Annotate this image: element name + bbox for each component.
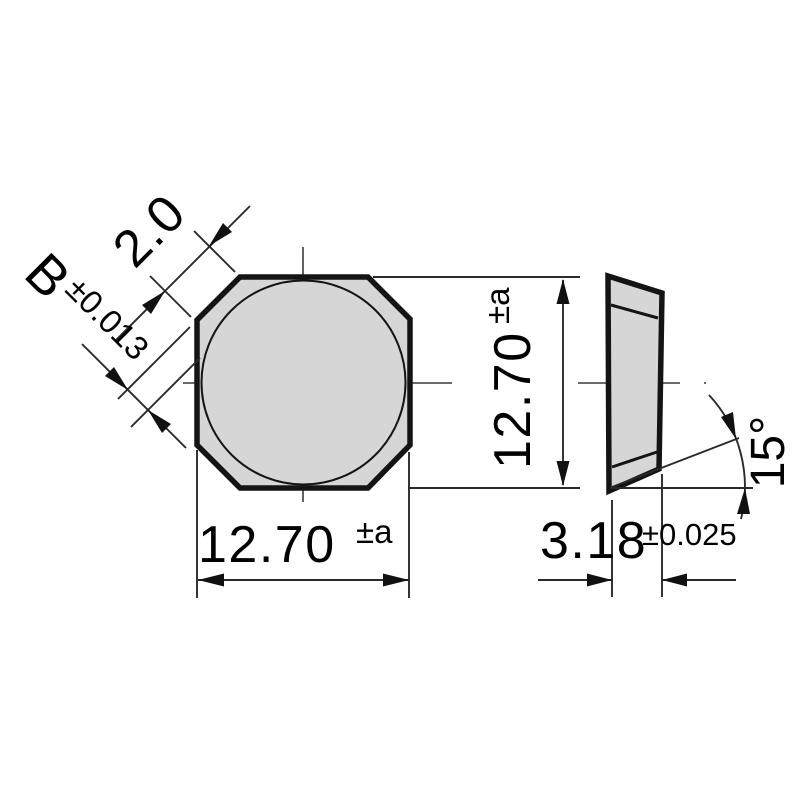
width-dim-tolerance: ±a [356, 513, 393, 550]
height-dim-value: 12.70 [484, 331, 542, 469]
height-arrow-bottom [557, 461, 570, 486]
width-dim-value: 12.70 [198, 516, 336, 574]
thickness-arrow-right [662, 574, 687, 587]
thickness-dim-value: 3.18 [540, 512, 647, 570]
technical-drawing-page: 2.0 B ±0.013 12.70 ±a 12.70 ±a 15° 3.18 [0, 0, 800, 800]
thickness-dim-tolerance: ±0.025 [642, 517, 737, 552]
angle-label: 15° [742, 416, 795, 489]
width-arrow-right [383, 574, 409, 587]
angle-arrow-upper [721, 412, 736, 439]
height-dim-label-group: 12.70 ±a [479, 287, 542, 469]
angle-arrow-lower [737, 488, 750, 514]
angle-arc [709, 395, 745, 519]
chamfer-dim-label: 2.0 [102, 183, 197, 278]
corner-ext-line-2 [131, 358, 200, 427]
thickness-arrow-left [587, 574, 612, 587]
width-arrow-left [198, 574, 224, 587]
front-view-octagon-outline [197, 277, 410, 488]
height-arrow-top [557, 279, 570, 304]
angle-label-group: 15° [742, 416, 795, 489]
corner-dim-tolerance: ±0.013 [59, 270, 156, 367]
insert-drawing: 2.0 B ±0.013 12.70 ±a 12.70 ±a 15° 3.18 [0, 0, 800, 800]
height-dim-tolerance: ±a [479, 287, 516, 324]
